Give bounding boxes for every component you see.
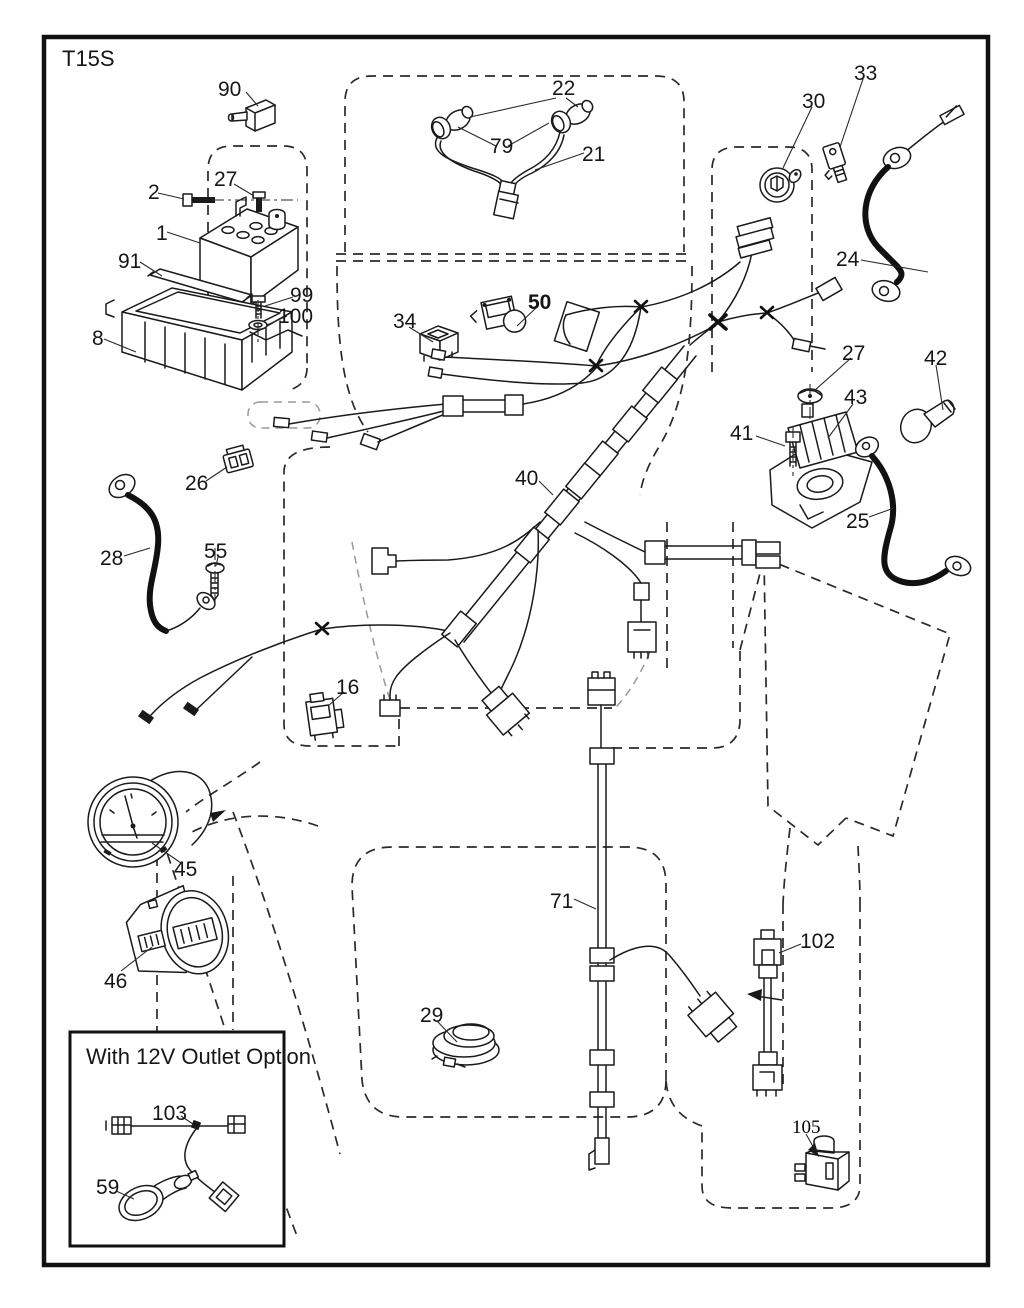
part-label-25: 25 bbox=[846, 510, 869, 533]
spade-terminal-right bbox=[792, 338, 825, 351]
part-label-45: 45 bbox=[174, 858, 197, 881]
spade-terminal bbox=[431, 349, 445, 360]
part-label-79: 79 bbox=[490, 135, 513, 158]
part-label-71: 71 bbox=[550, 890, 573, 913]
terminal bbox=[274, 417, 290, 427]
parts-diagram-page: T15S bbox=[0, 0, 1024, 1308]
terminal bbox=[311, 431, 327, 442]
inset-12v-outlet: With 12V Outlet Option bbox=[70, 1032, 311, 1246]
ignition-key bbox=[817, 142, 851, 185]
part-label-91: 91 bbox=[118, 250, 141, 273]
harness-connector-small bbox=[380, 633, 450, 716]
part-label-34: 34 bbox=[393, 310, 417, 333]
part-label-27b: 27 bbox=[842, 342, 865, 365]
part-label-90: 90 bbox=[218, 78, 241, 101]
part-label-33: 33 bbox=[854, 62, 877, 85]
inline-fuse-holder bbox=[443, 395, 523, 416]
harness-plug-large bbox=[478, 683, 535, 742]
battery-cable-24 bbox=[865, 105, 964, 304]
part-label-27a: 27 bbox=[214, 168, 237, 191]
part-label-103: 103 bbox=[152, 1102, 187, 1125]
part-label-102: 102 bbox=[800, 930, 835, 953]
terminal-boot-42 bbox=[896, 400, 955, 447]
battery-bolt-2 bbox=[183, 194, 215, 206]
part-label-41: 41 bbox=[730, 422, 753, 445]
page-title: T15S bbox=[62, 46, 115, 71]
stack-connector bbox=[736, 218, 774, 258]
part-label-29: 29 bbox=[420, 1004, 443, 1027]
part-label-30: 30 bbox=[802, 90, 825, 113]
part-label-50: 50 bbox=[528, 291, 551, 314]
part-label-46: 46 bbox=[104, 970, 127, 993]
part-label-59: 59 bbox=[96, 1176, 119, 1199]
part-label-1: 1 bbox=[156, 222, 168, 245]
battery-bolt-27 bbox=[253, 192, 265, 212]
part-label-42: 42 bbox=[924, 347, 947, 370]
plug bbox=[360, 434, 380, 450]
part-label-43: 43 bbox=[844, 386, 867, 409]
battery-assembly bbox=[106, 100, 302, 390]
tube-assembly bbox=[585, 522, 780, 568]
part-label-24: 24 bbox=[836, 248, 860, 271]
part-label-26: 26 bbox=[185, 472, 208, 495]
splice-marks bbox=[316, 301, 773, 634]
harness-71-top-connector bbox=[588, 672, 615, 748]
part-label-55: 55 bbox=[204, 540, 227, 563]
fuse-26 bbox=[222, 444, 254, 473]
bullet-terminal bbox=[138, 710, 154, 725]
connector-90 bbox=[229, 100, 276, 131]
headlight-connector bbox=[494, 181, 519, 219]
ignition-switch bbox=[760, 167, 803, 202]
part-label-2: 2 bbox=[148, 181, 160, 204]
branch-connector-left bbox=[372, 522, 540, 574]
branch-plug bbox=[684, 988, 741, 1046]
wiring-parts-diagram: T15S bbox=[0, 0, 1024, 1308]
part-label-22: 22 bbox=[552, 77, 575, 100]
spade-terminal bbox=[428, 367, 442, 378]
part-label-16: 16 bbox=[336, 676, 359, 699]
valve-105 bbox=[795, 1136, 849, 1190]
inset-title: With 12V Outlet Option bbox=[86, 1044, 311, 1069]
part-label-8: 8 bbox=[92, 327, 104, 350]
part-label-99: 99 bbox=[290, 284, 313, 307]
part-label-28: 28 bbox=[100, 547, 123, 570]
switch-50 bbox=[468, 294, 527, 340]
ground-cable-25 bbox=[852, 433, 973, 583]
plug bbox=[816, 277, 842, 300]
part-label-21: 21 bbox=[582, 143, 605, 166]
part-label-105: 105 bbox=[792, 1117, 821, 1138]
hourmeter-46 bbox=[121, 878, 237, 989]
headlight-harness bbox=[428, 98, 597, 219]
part-label-40: 40 bbox=[515, 467, 538, 490]
battery-terminal bbox=[269, 210, 285, 230]
part-label-100: 100 bbox=[278, 305, 313, 328]
ammeter-gauge-45 bbox=[88, 771, 226, 867]
harness-71 bbox=[588, 672, 741, 1170]
bullet-terminal bbox=[183, 702, 199, 717]
connector-102 bbox=[747, 930, 782, 1096]
horn-29 bbox=[432, 1024, 499, 1067]
harness-71-end bbox=[589, 1138, 609, 1170]
